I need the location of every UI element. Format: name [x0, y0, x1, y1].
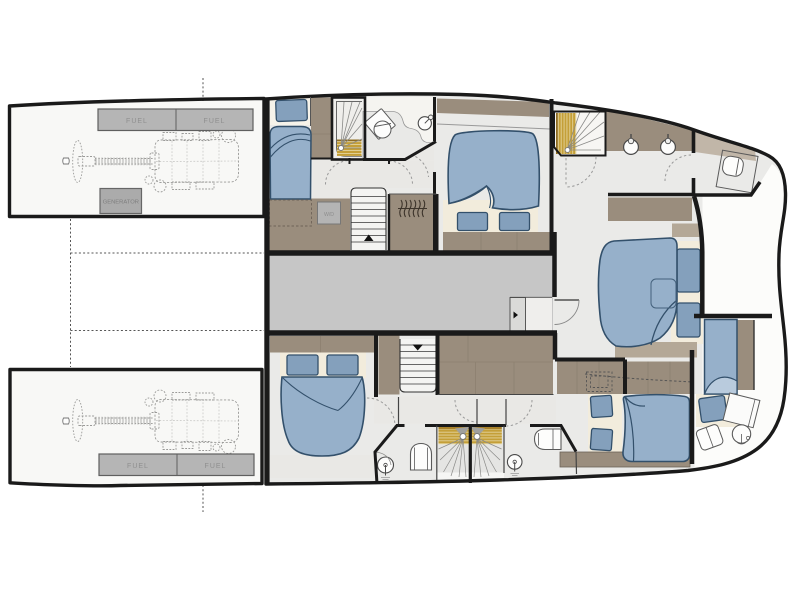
svg-text:GENERATOR: GENERATOR: [103, 200, 139, 206]
svg-text:FUEL: FUEL: [204, 118, 226, 125]
svg-text:W/D: W/D: [324, 212, 334, 218]
svg-text:FUEL: FUEL: [127, 463, 149, 470]
svg-text:FUEL: FUEL: [205, 463, 227, 470]
svg-text:FUEL: FUEL: [126, 118, 148, 125]
